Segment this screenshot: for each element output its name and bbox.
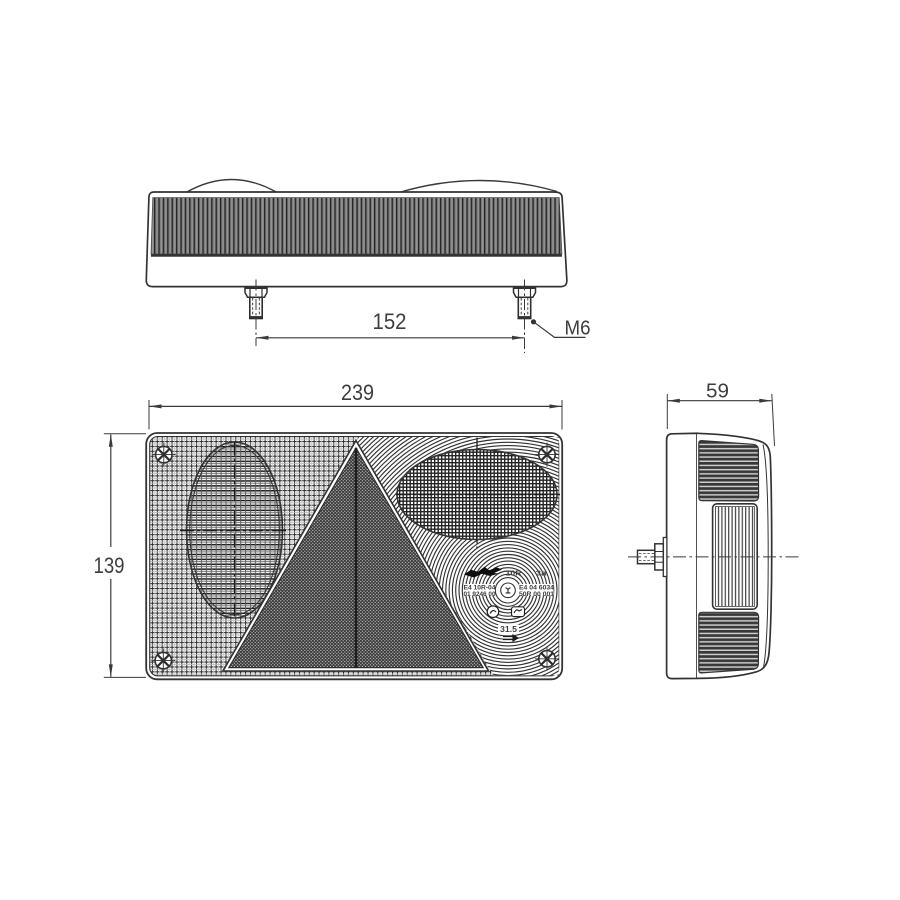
svg-text:152: 152 [373,309,407,334]
svg-text:50R 00 001: 50R 00 001 [519,592,555,598]
svg-text:E4 04 6034: E4 04 6034 [519,586,555,592]
svg-text:01 9246 00: 01 9246 00 [464,592,497,598]
svg-text:E4 10R-04: E4 10R-04 [464,586,497,592]
svg-text:139: 139 [94,553,125,578]
svg-text:239: 239 [341,380,374,405]
svg-text:M6: M6 [565,316,591,339]
svg-text:31.5: 31.5 [500,624,517,634]
svg-text:59: 59 [706,380,729,403]
svg-text:10R: 10R [506,568,523,577]
svg-text:3a: 3a [536,568,548,577]
